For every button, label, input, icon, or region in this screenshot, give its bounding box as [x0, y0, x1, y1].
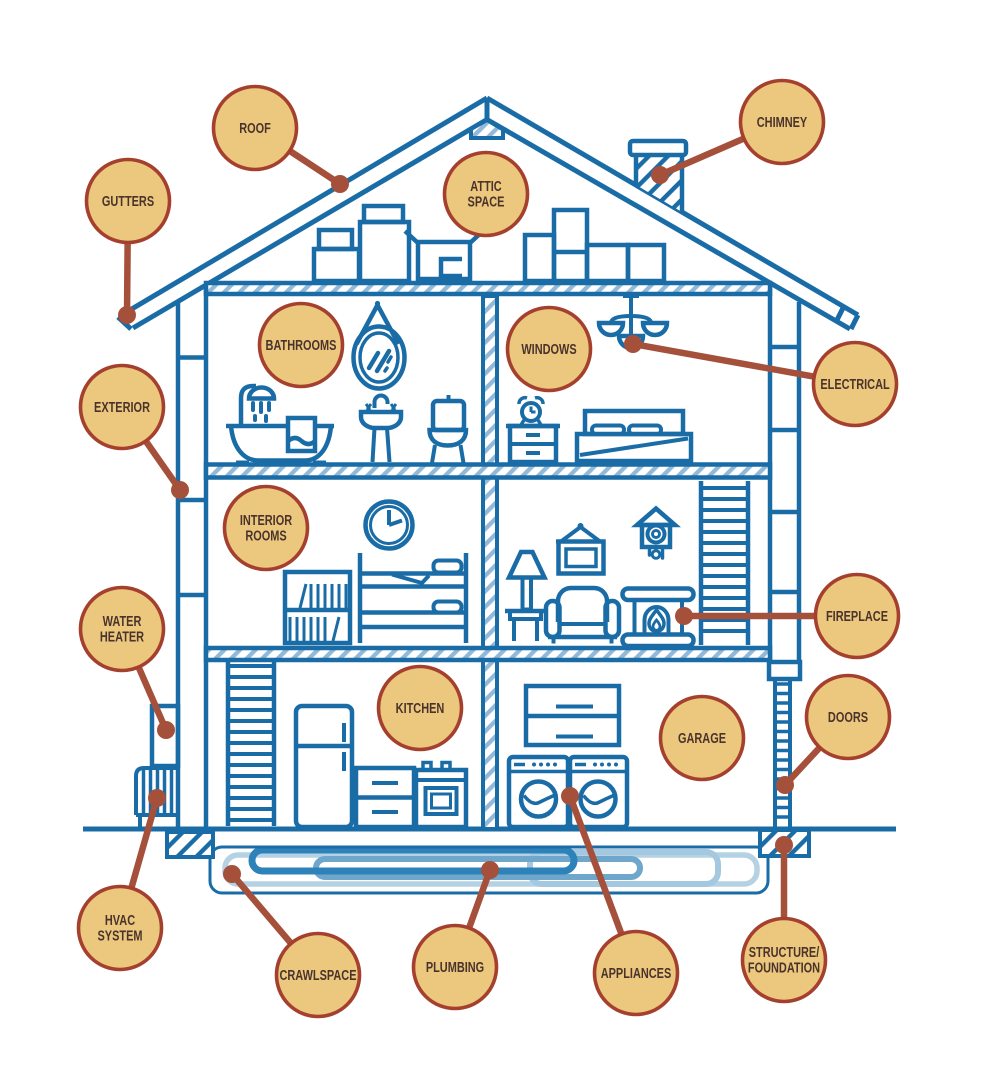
svg-text:STRUCTURE/FOUNDATION: STRUCTURE/FOUNDATION [748, 943, 820, 976]
svg-text:GUTTERS: GUTTERS [102, 192, 154, 209]
svg-text:WATERHEATER: WATERHEATER [100, 612, 145, 645]
svg-text:CRAWLSPACE: CRAWLSPACE [279, 966, 356, 983]
svg-text:ATTICSPACE: ATTICSPACE [468, 177, 505, 210]
svg-text:GARAGE: GARAGE [678, 729, 726, 746]
svg-text:ELECTRICAL: ELECTRICAL [820, 375, 889, 392]
svg-text:BATHROOMS: BATHROOMS [266, 336, 337, 353]
svg-text:APPLIANCES: APPLIANCES [601, 964, 672, 981]
svg-text:DOORS: DOORS [828, 708, 868, 725]
svg-text:PLUMBING: PLUMBING [426, 958, 484, 975]
svg-text:FIREPLACE: FIREPLACE [826, 607, 888, 624]
svg-text:WINDOWS: WINDOWS [521, 340, 577, 357]
svg-text:CHIMNEY: CHIMNEY [757, 113, 808, 130]
svg-text:ROOF: ROOF [239, 119, 271, 136]
svg-text:KITCHEN: KITCHEN [396, 699, 445, 716]
svg-text:EXTERIOR: EXTERIOR [94, 398, 150, 415]
svg-text:INTERIORROOMS: INTERIORROOMS [240, 511, 293, 544]
